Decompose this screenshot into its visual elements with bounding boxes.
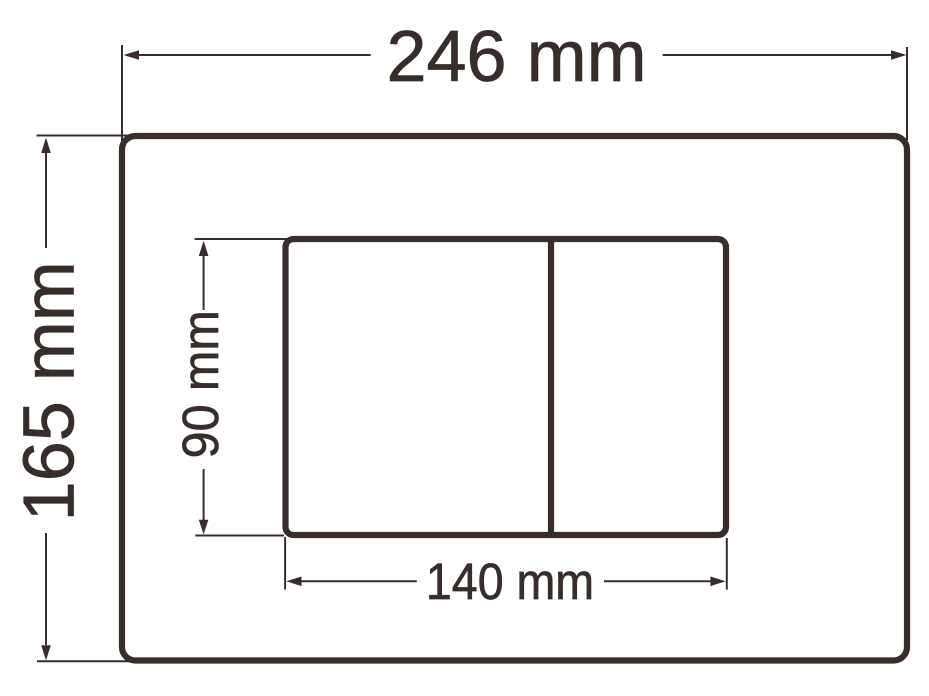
svg-text:246 mm: 246 mm [386,17,646,97]
svg-text:140 mm: 140 mm [426,554,594,610]
svg-text:165 mm: 165 mm [10,261,90,521]
svg-text:90 mm: 90 mm [172,310,229,458]
